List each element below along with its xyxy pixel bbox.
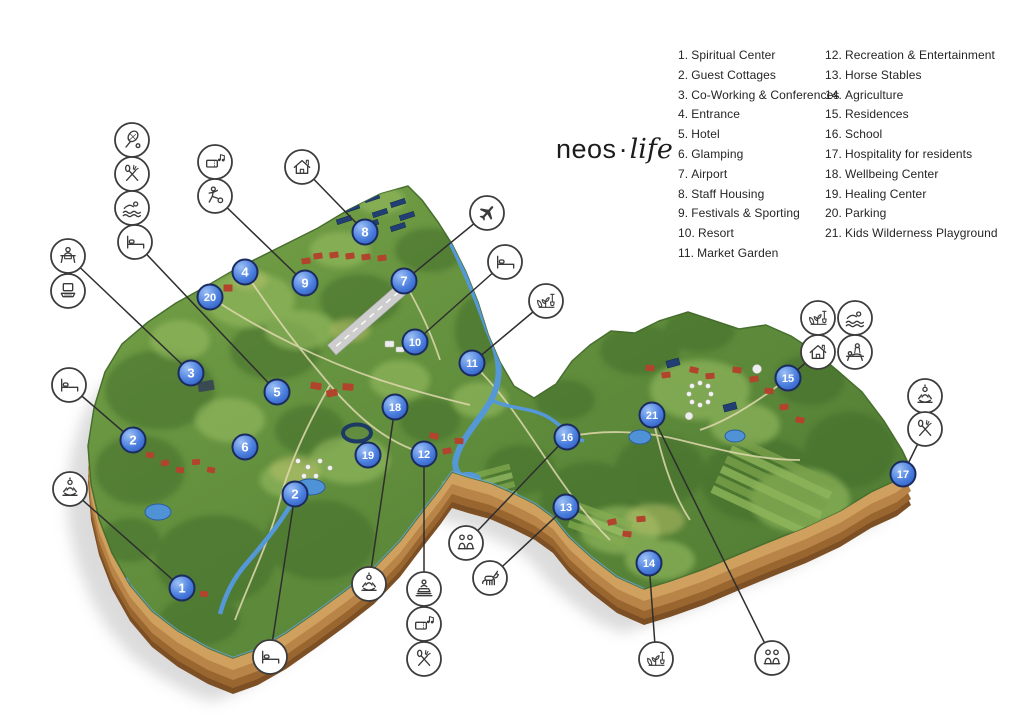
legend-item-number: 11. (678, 246, 694, 260)
brand-name-suffix: life (630, 134, 673, 165)
legend-item-label: Kids Wilderness Playground (845, 226, 998, 240)
legend-item: 7.Airport (678, 165, 839, 185)
icon-circle (908, 379, 942, 413)
tennis-icon (115, 123, 149, 157)
marker-9: 9 (293, 271, 318, 296)
marker-number: 12 (418, 449, 430, 461)
swimming-icon (838, 301, 872, 335)
legend-item-label: Healing Center (845, 187, 926, 201)
legend-item-number: 3. (678, 88, 688, 102)
legend-item: 3.Co-Working & Conferences (678, 86, 839, 106)
statue-icon (407, 572, 441, 606)
bed-icon (118, 225, 152, 259)
legend-item-label: Guest Cottages (691, 68, 776, 82)
marker-number: 2 (291, 487, 298, 502)
legend-item-label: Entrance (691, 107, 740, 121)
legend-item: 1.Spiritual Center (678, 46, 839, 66)
marker-20: 20 (198, 285, 223, 310)
icon-circle (285, 150, 319, 184)
legend-item-label: Festivals & Sporting (691, 206, 800, 220)
brand-separator: · (617, 134, 630, 164)
legend-item-number: 9. (678, 206, 688, 220)
legend-item: 17.Hospitality for residents (825, 145, 998, 165)
bed-icon (52, 368, 86, 402)
legend-item: 15.Residences (825, 105, 998, 125)
marker-11: 11 (460, 351, 485, 376)
marker-21: 21 (640, 403, 665, 428)
garden-icon (801, 301, 835, 335)
legend-item: 16.School (825, 125, 998, 145)
legend-item-label: Horse Stables (845, 68, 922, 82)
legend-item-label: Resort (698, 226, 734, 240)
legend-item: 6.Glamping (678, 145, 839, 165)
legend-item: 9.Festivals & Sporting (678, 204, 839, 224)
legend-item-number: 17. (825, 147, 842, 161)
legend-column-2: 12.Recreation & Entertainment13.Horse St… (825, 46, 998, 244)
marker-4: 4 (233, 260, 258, 285)
legend-item: 19.Healing Center (825, 185, 998, 205)
marker-19: 19 (356, 443, 381, 468)
icon-circle (115, 123, 149, 157)
marker-number: 8 (361, 225, 368, 240)
marker-3: 3 (179, 361, 204, 386)
legend-item: 20.Parking (825, 204, 998, 224)
legend-item: 2.Guest Cottages (678, 66, 839, 86)
legend-item-number: 20. (825, 206, 842, 220)
swimming-icon (115, 191, 149, 225)
dining-icon (908, 412, 942, 446)
icon-circle (53, 472, 87, 506)
marker-number: 11 (466, 358, 478, 370)
marker-number: 14 (643, 558, 656, 570)
legend-item-label: Residences (845, 107, 909, 121)
legend-item: 10.Resort (678, 224, 839, 244)
legend-item-label: Spiritual Center (691, 48, 775, 62)
legend-item-number: 15. (825, 107, 842, 121)
legend-item: 5.Hotel (678, 125, 839, 145)
legend-item-number: 2. (678, 68, 688, 82)
icon-circle (488, 245, 522, 279)
garden-icon (529, 284, 563, 318)
legend-item-label: Agriculture (845, 88, 903, 102)
legend-item-number: 19. (825, 187, 842, 201)
legend-item-number: 16. (825, 127, 842, 141)
marker-2: 2 (283, 482, 308, 507)
bed-icon (488, 245, 522, 279)
marker-2: 2 (121, 428, 146, 453)
marker-16: 16 (555, 425, 580, 450)
marker-number: 13 (560, 502, 572, 514)
legend-item: 12.Recreation & Entertainment (825, 46, 998, 66)
icon-circle (118, 225, 152, 259)
marker-10: 10 (403, 330, 428, 355)
bed-icon (253, 640, 287, 674)
massage-icon (838, 335, 872, 369)
marker-number: 16 (561, 432, 573, 444)
legend-item-label: Recreation & Entertainment (845, 48, 995, 62)
legend-column-1: 1.Spiritual Center2.Guest Cottages3.Co-W… (678, 46, 839, 264)
marker-number: 17 (897, 469, 909, 481)
house-icon (285, 150, 319, 184)
legend-item-label: Wellbeing Center (845, 167, 938, 181)
icon-circle (449, 526, 483, 560)
meditation-icon (352, 567, 386, 601)
legend-item-label: Glamping (691, 147, 743, 161)
dining-icon (407, 642, 441, 676)
legend-item: 13.Horse Stables (825, 66, 998, 86)
legend-item: 18.Wellbeing Center (825, 165, 998, 185)
marker-number: 18 (389, 402, 401, 414)
legend-item-label: Hotel (691, 127, 720, 141)
marker-1: 1 (170, 576, 195, 601)
legend-item-number: 8. (678, 187, 688, 201)
marker-number: 6 (241, 440, 248, 455)
legend-item-number: 4. (678, 107, 688, 121)
page: 1223456789101112131415161718192021 neos·… (0, 0, 1024, 724)
marker-number: 19 (362, 450, 374, 462)
legend-item-label: Co-Working & Conferences (691, 88, 839, 102)
icon-circle (352, 567, 386, 601)
pool (343, 425, 371, 442)
kids-icon (755, 641, 789, 675)
marker-6: 6 (233, 435, 258, 460)
marker-number: 15 (782, 373, 794, 385)
marker-number: 7 (400, 274, 407, 289)
legend-item-number: 6. (678, 147, 688, 161)
marker-number: 2 (129, 433, 136, 448)
legend-item-label: Staff Housing (691, 187, 764, 201)
icon-circle (52, 368, 86, 402)
legend-item: 11.Market Garden (678, 244, 839, 264)
legend-item-number: 14. (825, 88, 842, 102)
legend-item-number: 7. (678, 167, 688, 181)
icon-circle (198, 179, 232, 213)
house-icon (801, 335, 835, 369)
icon-circle (198, 145, 232, 179)
icon-circle (115, 191, 149, 225)
marker-number: 21 (646, 410, 658, 422)
marker-8: 8 (353, 220, 378, 245)
legend-item-number: 21. (825, 226, 842, 240)
marker-number: 5 (273, 385, 280, 400)
legend-item-label: Hospitality for residents (845, 147, 972, 161)
marker-number: 4 (241, 265, 249, 280)
legend-item-number: 1. (678, 48, 688, 62)
legend-item-label: School (845, 127, 882, 141)
horse-icon (473, 561, 507, 595)
legend-item-number: 13. (825, 68, 842, 82)
airplane-icon (470, 196, 504, 230)
legend-item-number: 18. (825, 167, 842, 181)
legend-item: 14.Agriculture (825, 86, 998, 106)
brand-logo: neos·life (556, 134, 673, 165)
dining-icon (115, 157, 149, 191)
marker-number: 1 (178, 581, 185, 596)
marker-number: 20 (204, 292, 216, 304)
marker-13: 13 (554, 495, 579, 520)
legend-item-label: Market Garden (697, 246, 778, 260)
marker-12: 12 (412, 442, 437, 467)
marker-number: 10 (409, 337, 421, 349)
marker-7: 7 (392, 269, 417, 294)
legend-item: 21.Kids Wilderness Playground (825, 224, 998, 244)
legend-item-number: 12. (825, 48, 842, 62)
icon-circle (801, 335, 835, 369)
garden-icon (639, 642, 673, 676)
kids-icon (449, 526, 483, 560)
icon-circle (755, 641, 789, 675)
reception-icon (51, 239, 85, 273)
festival-icon (198, 145, 232, 179)
icon-circle (473, 561, 507, 595)
marker-5: 5 (265, 380, 290, 405)
marker-18: 18 (383, 395, 408, 420)
marker-14: 14 (637, 551, 662, 576)
soccer-icon (198, 179, 232, 213)
brand-name-main: neos (556, 134, 617, 164)
legend-item-number: 10. (678, 226, 695, 240)
legend-item-label: Airport (691, 167, 727, 181)
marker-15: 15 (776, 366, 801, 391)
icon-circle (407, 607, 441, 641)
laptop-icon (51, 274, 85, 308)
meditation-icon (908, 379, 942, 413)
festival-icon (407, 607, 441, 641)
marker-number: 9 (301, 276, 308, 291)
legend-item-label: Parking (845, 206, 886, 220)
legend-item: 4.Entrance (678, 105, 839, 125)
icon-circle (253, 640, 287, 674)
legend-item: 8.Staff Housing (678, 185, 839, 205)
icon-circle (838, 301, 872, 335)
meditation-icon (53, 472, 87, 506)
marker-number: 3 (187, 366, 194, 381)
marker-17: 17 (891, 462, 916, 487)
legend-item-number: 5. (678, 127, 688, 141)
